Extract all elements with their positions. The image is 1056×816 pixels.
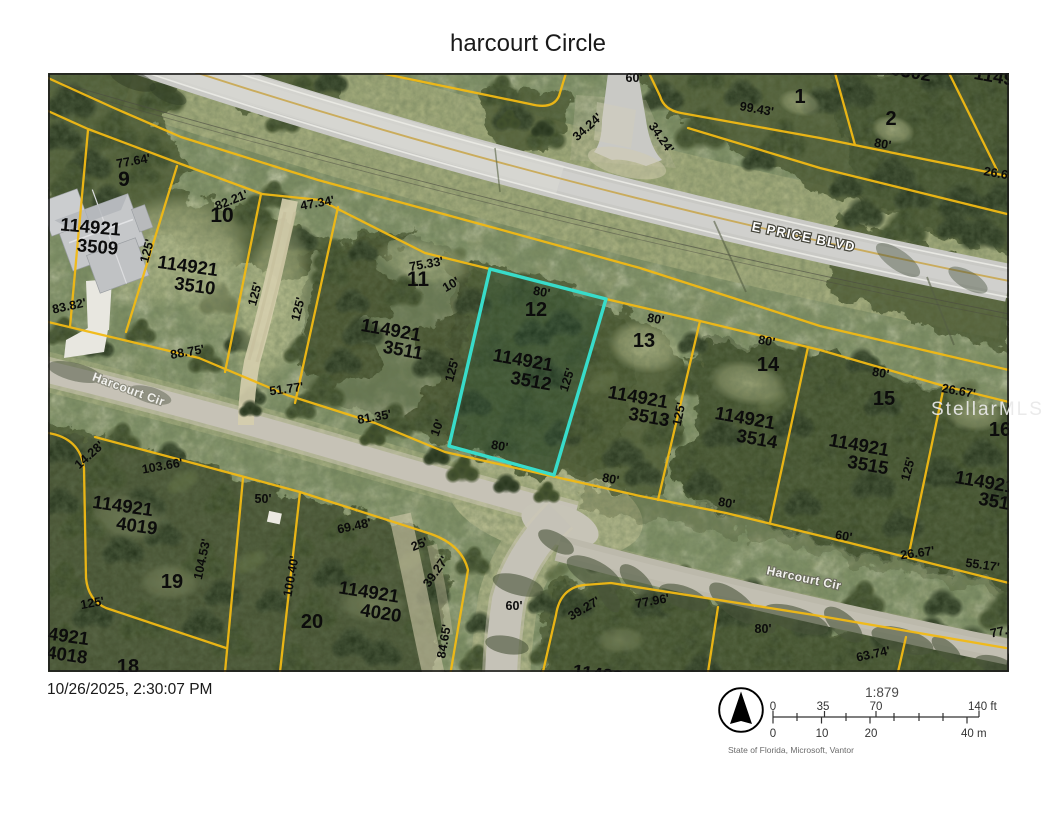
svg-text:80': 80': [646, 311, 665, 328]
svg-text:80': 80': [871, 365, 890, 382]
svg-text:80': 80': [601, 471, 620, 488]
svg-text:80': 80': [490, 438, 509, 455]
svg-text:80': 80': [757, 333, 776, 350]
svg-text:20: 20: [865, 728, 878, 740]
svg-text:13: 13: [633, 330, 655, 352]
svg-text:60': 60': [506, 599, 523, 613]
svg-text:20: 20: [301, 611, 323, 633]
svg-text:19: 19: [161, 571, 183, 593]
svg-text:16: 16: [989, 419, 1009, 441]
svg-text:9: 9: [118, 168, 130, 191]
svg-text:60': 60': [834, 528, 853, 545]
svg-text:50': 50': [255, 492, 272, 506]
svg-text:15: 15: [873, 388, 895, 410]
svg-text:12: 12: [525, 299, 547, 321]
svg-text:140 ft: 140 ft: [968, 701, 998, 713]
svg-text:40 m: 40 m: [961, 728, 987, 740]
svg-text:14: 14: [757, 354, 780, 376]
svg-text:1:879: 1:879: [865, 685, 899, 700]
svg-text:3509: 3509: [76, 234, 119, 259]
svg-text:0: 0: [770, 728, 776, 740]
svg-text:80': 80': [873, 136, 892, 153]
svg-text:18: 18: [117, 656, 139, 672]
svg-text:35: 35: [817, 701, 830, 713]
svg-text:2: 2: [885, 108, 896, 130]
svg-text:80': 80': [717, 495, 736, 512]
svg-text:10: 10: [816, 728, 829, 740]
svg-text:80': 80': [755, 622, 772, 636]
svg-text:80': 80': [532, 284, 551, 301]
svg-text:1: 1: [794, 86, 805, 108]
